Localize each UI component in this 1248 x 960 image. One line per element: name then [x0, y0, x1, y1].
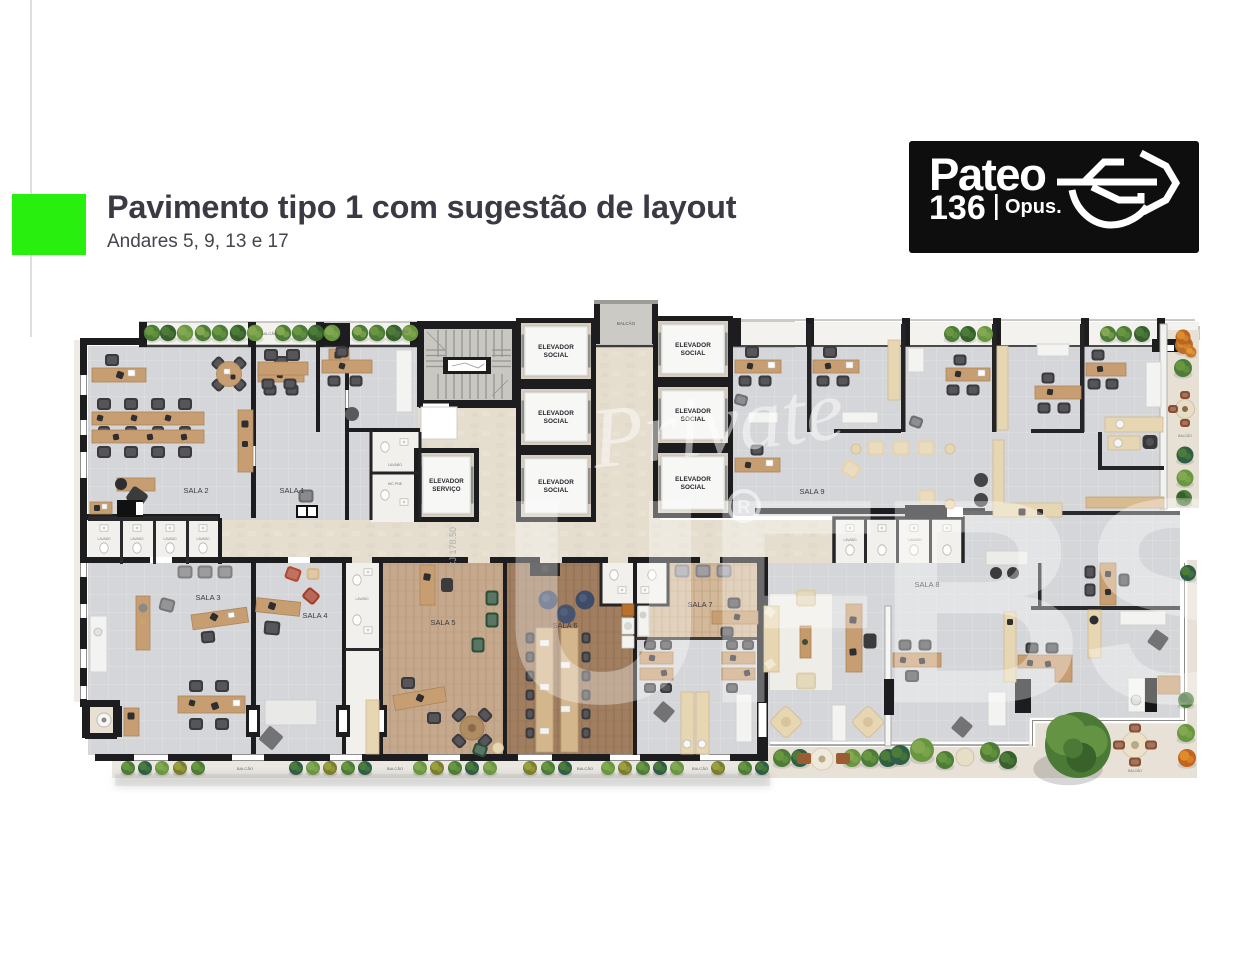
svg-text:SALA 4: SALA 4 — [302, 611, 327, 620]
svg-text:SALA 2: SALA 2 — [183, 486, 208, 495]
svg-text:BALCÃO: BALCÃO — [577, 766, 593, 771]
svg-text:BALCÃO: BALCÃO — [237, 766, 253, 771]
svg-text:SOCIAL: SOCIAL — [544, 418, 569, 425]
svg-text:SERVIÇO: SERVIÇO — [432, 486, 461, 493]
svg-text:LAVABO: LAVABO — [388, 463, 402, 467]
svg-text:ELEVADOR: ELEVADOR — [675, 342, 711, 349]
svg-text:UFBS: UFBS — [498, 438, 1248, 764]
svg-text:CJ 178.50: CJ 178.50 — [448, 527, 458, 568]
svg-text:SALA 5: SALA 5 — [430, 618, 455, 627]
svg-text:BALCÃO: BALCÃO — [394, 329, 409, 334]
svg-text:LAVABO: LAVABO — [163, 537, 176, 541]
svg-text:BALCÃO: BALCÃO — [387, 766, 403, 771]
svg-text:LAVABO: LAVABO — [355, 597, 368, 601]
svg-text:BALCÃO: BALCÃO — [1128, 768, 1142, 773]
svg-text:BALCÃO: BALCÃO — [692, 766, 708, 771]
svg-text:SOCIAL: SOCIAL — [544, 352, 569, 359]
svg-text:LAVABO: LAVABO — [97, 537, 110, 541]
svg-text:LAVABO: LAVABO — [130, 537, 143, 541]
svg-text:LAVABO: LAVABO — [196, 537, 209, 541]
svg-text:SOCIAL: SOCIAL — [681, 350, 706, 357]
svg-text:BALCÃO: BALCÃO — [261, 331, 277, 336]
svg-text:SALA 1: SALA 1 — [279, 486, 304, 495]
svg-text:BALCÃO: BALCÃO — [617, 320, 636, 326]
svg-text:ELEVADOR: ELEVADOR — [538, 344, 574, 351]
svg-text:R: R — [738, 497, 751, 517]
svg-text:ELEVADOR: ELEVADOR — [429, 478, 464, 485]
svg-text:ELEVADOR: ELEVADOR — [538, 410, 574, 417]
svg-text:WC PNE: WC PNE — [388, 482, 403, 486]
svg-text:SALA 3: SALA 3 — [195, 593, 220, 602]
